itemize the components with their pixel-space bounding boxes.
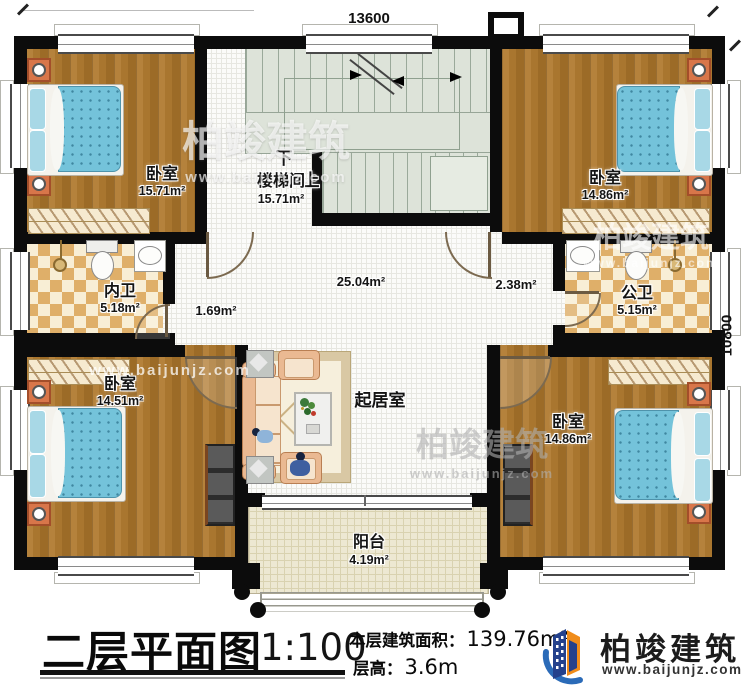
floor-height-row: 层高： 3.6m (353, 655, 458, 679)
bed-pillow (694, 458, 711, 502)
wall (318, 213, 502, 226)
side-table-symbol (246, 350, 274, 378)
room-label: 卧室 (70, 376, 170, 394)
window (58, 34, 194, 54)
floor-plan-page: 13600 10800 卧室 15.71m² 下 上 楼梯间 15.71m² 卧… (0, 0, 750, 692)
nightstand-symbol (27, 380, 51, 404)
floor-height-value: 3.6m (405, 655, 459, 679)
chimney (488, 12, 524, 40)
tray-symbol (306, 424, 320, 434)
wall (470, 493, 500, 507)
door-leaf (488, 232, 491, 277)
window (710, 84, 730, 168)
stairs-guardrail (284, 78, 460, 150)
stairs-direction-arrow (350, 70, 362, 80)
window (58, 556, 194, 576)
column-dot (474, 602, 490, 618)
bed-pillow (29, 410, 46, 454)
wall (490, 48, 502, 232)
person-figure (290, 460, 310, 476)
nook-area: 2.38m² (476, 277, 556, 292)
wall (26, 345, 185, 357)
room-label: 卧室 (112, 166, 212, 184)
wardrobe-symbol (562, 208, 710, 234)
room-area: 15.71m² (231, 192, 331, 206)
window (543, 34, 689, 54)
sliding-door (262, 495, 472, 510)
wall (553, 333, 712, 345)
bed-mattress (615, 410, 679, 500)
dimension-top: 13600 (306, 10, 432, 27)
window (306, 34, 432, 54)
room-area: 5.18m² (70, 301, 170, 315)
room-area: 14.86m² (555, 188, 655, 202)
room-area: 5.15m² (587, 303, 687, 317)
nightstand-symbol (27, 502, 51, 526)
title-underline (40, 670, 345, 675)
wall (235, 493, 265, 507)
nightstand-symbol (687, 382, 711, 406)
balcony-railing (260, 592, 484, 612)
axis-tick (729, 39, 741, 51)
logo-icon-svg (536, 622, 596, 686)
side-table-symbol (246, 456, 274, 484)
shower-symbol (60, 240, 62, 260)
logo-url: www.baijunjz.com (602, 662, 743, 677)
floor-area-label: 本层建筑面积： (349, 627, 465, 651)
sink-basin-symbol (138, 246, 162, 265)
wall (548, 345, 712, 357)
bed-mattress (58, 86, 121, 172)
window (543, 556, 689, 576)
logo-icon (536, 622, 596, 686)
bed-pillow (694, 88, 711, 130)
room-area: 14.86m² (518, 432, 618, 446)
shower-head-symbol (668, 258, 682, 272)
room-area: 14.51m² (70, 394, 170, 408)
sliding-door-break (364, 495, 366, 506)
wall (195, 48, 207, 232)
window (710, 390, 730, 470)
person-figure (257, 430, 273, 443)
sink-basin-symbol (570, 246, 595, 265)
column-dot (234, 584, 250, 600)
room-label: 卧室 (518, 414, 618, 432)
wardrobe-symbol (28, 208, 150, 234)
bed-blanket (50, 88, 64, 170)
bed-pillow (29, 88, 46, 130)
room-label: 起居室 (330, 392, 430, 411)
room-area: 15.71m² (112, 184, 212, 198)
nook-area: 1.69m² (176, 303, 256, 318)
bed-mattress (617, 86, 680, 172)
bed-pillow (29, 454, 46, 498)
shower-symbol (674, 240, 676, 260)
column-dot (250, 602, 266, 618)
stairs-direction-arrow (450, 72, 462, 82)
nightstand-symbol (687, 58, 711, 82)
bed-pillow (694, 412, 711, 456)
room-label: 阳台 (319, 534, 419, 552)
dimension-leader (24, 10, 254, 11)
plant-symbol (300, 398, 309, 407)
dresser-symbol (503, 444, 533, 526)
stairs-lower-landing (430, 156, 488, 211)
dimension-right: 10800 (719, 306, 736, 366)
floor-height-label: 层高： (353, 655, 403, 679)
door-leaf (185, 356, 235, 359)
wall (487, 345, 500, 570)
bed-blanket (671, 412, 685, 498)
column-dot (490, 584, 506, 600)
title-underline-thin (40, 677, 345, 679)
room-label: 公卫 (587, 285, 687, 303)
window (10, 252, 30, 330)
toilet-bowl-symbol (91, 251, 114, 280)
room-area: 4.19m² (319, 553, 419, 567)
room-label: 卧室 (555, 170, 655, 188)
axis-tick (707, 5, 719, 17)
toilet-bowl-symbol (625, 251, 648, 280)
bed-blanket (51, 410, 65, 496)
nightstand-symbol (27, 58, 51, 82)
bed-mattress (58, 408, 122, 498)
shower-head-symbol (53, 258, 67, 272)
bed-pillow (694, 130, 711, 172)
hall-area: 25.04m² (311, 274, 411, 289)
door-leaf (206, 232, 209, 277)
room-label: 内卫 (70, 283, 170, 301)
stairs-down-label: 下 (272, 150, 296, 169)
dresser-symbol (205, 444, 235, 526)
sofa-cushions (255, 376, 281, 466)
door-leaf (500, 356, 550, 359)
room-label: 楼梯间 (231, 173, 331, 191)
bed-pillow (29, 130, 46, 172)
bed-blanket (674, 88, 688, 170)
armchair-seat (284, 358, 314, 378)
stairs-direction-arrow (392, 76, 404, 86)
